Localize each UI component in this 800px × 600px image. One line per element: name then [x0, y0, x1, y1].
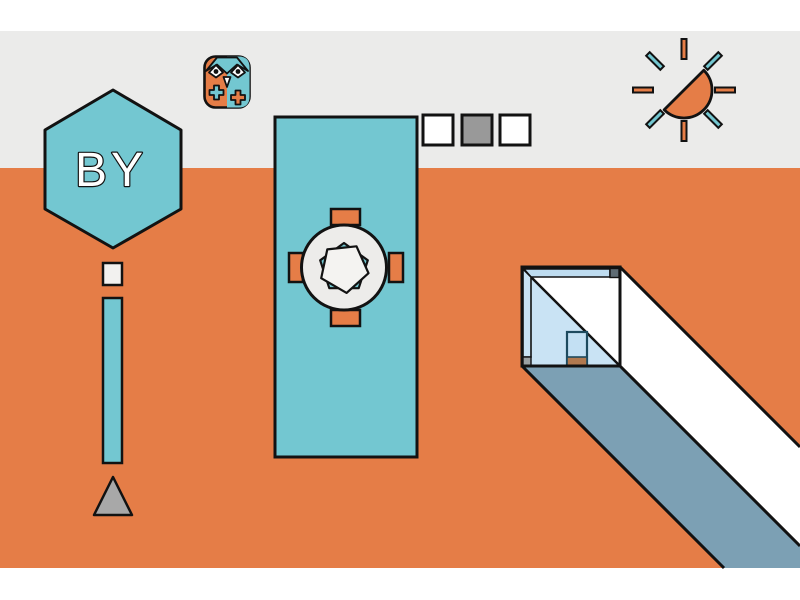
illustration-canvas: BY [0, 0, 800, 600]
marker-dot-square [103, 263, 122, 285]
color-swatches [423, 115, 530, 145]
doorway-left-jamb [523, 269, 531, 357]
sun-ray-s [682, 121, 687, 141]
doorway-ceiling-corner [610, 269, 619, 278]
sun-icon [633, 39, 735, 141]
color-swatch-1 [423, 115, 453, 145]
owl-left-pupil [214, 69, 219, 74]
owl-right-pupil [236, 69, 241, 74]
marker-bar [103, 298, 122, 463]
chair-right [389, 253, 403, 282]
sun-ray-n [682, 39, 687, 59]
doorway-ceiling-strip [524, 269, 610, 277]
sun-ray-e [715, 88, 735, 93]
table-scene [275, 117, 417, 457]
color-swatch-2 [462, 115, 492, 145]
sun-ray-w [633, 88, 653, 93]
color-swatch-3 [500, 115, 530, 145]
chair-top [331, 209, 360, 225]
hexagon-label: BY [75, 144, 147, 197]
chair-bottom [331, 310, 360, 326]
owl-icon [205, 57, 250, 108]
